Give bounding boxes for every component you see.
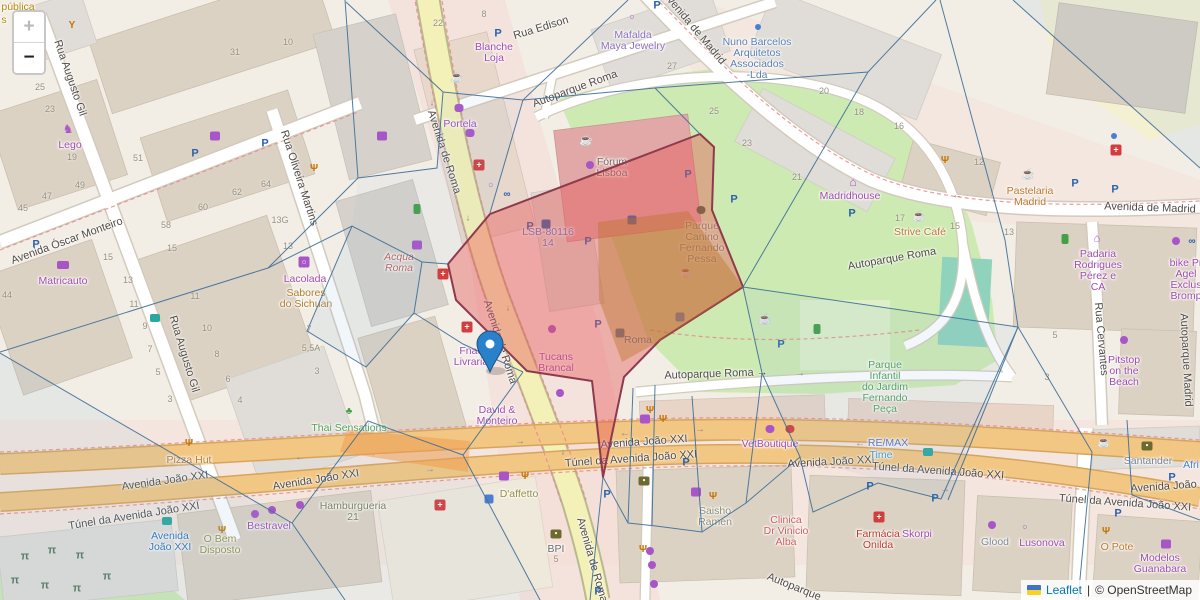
openstreetmap-link[interactable]: © OpenStreetMap [1095,583,1192,597]
ukraine-flag-icon [1027,585,1041,595]
marker-layer [0,0,1200,600]
leaflet-link[interactable]: Leaflet [1046,583,1082,597]
zoom-out-button[interactable]: − [14,42,44,73]
marker-inner-dot [486,340,495,349]
zoom-in-button[interactable]: + [14,12,44,42]
map-canvas[interactable]: Rua Augusto GilRua Augusto GilAvenida Ós… [0,0,1200,600]
attribution-bar: Leaflet | © OpenStreetMap [1021,580,1200,600]
zoom-control: + − [12,10,46,75]
map-marker-pin[interactable] [477,331,503,372]
attribution-separator: | [1087,583,1090,597]
